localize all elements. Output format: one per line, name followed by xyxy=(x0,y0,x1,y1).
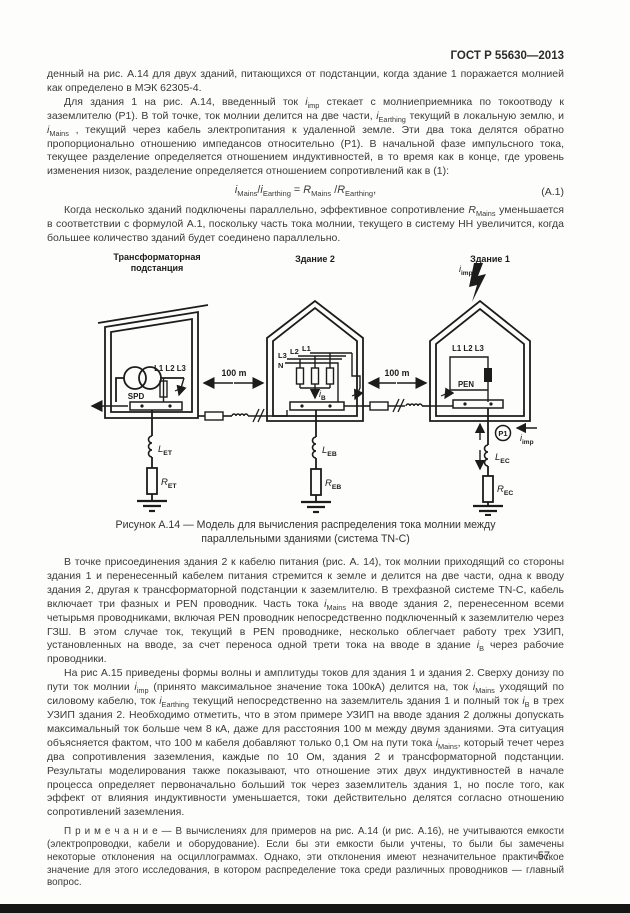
busbar-terminal xyxy=(463,402,466,405)
text-block-bottom: В точке присоединения здания 2 к кабелю … xyxy=(47,556,564,890)
page-number: 57 xyxy=(538,850,550,862)
inductor xyxy=(485,445,489,466)
spd-tube xyxy=(312,368,319,384)
substation-phases-label: L1 L2 L3 xyxy=(154,364,186,373)
ground-symbol xyxy=(473,506,503,515)
note-paragraph: П р и м е ч а н и е — В вычислениях для … xyxy=(47,826,564,890)
inductance-label: LEC xyxy=(495,452,510,465)
page-bottom-edge xyxy=(0,904,630,913)
figure-caption-line1: Рисунок А.14 — Модель для вычисления рас… xyxy=(47,518,564,532)
spd-tube xyxy=(297,368,304,384)
paragraph-parallel-buildings: Когда несколько зданий подключены паралл… xyxy=(47,204,564,246)
substation-title-line2: подстанция xyxy=(131,263,184,273)
paragraph-building2-connection: В точке присоединения здания 2 к кабелю … xyxy=(47,556,564,667)
busbar-terminal xyxy=(140,404,143,407)
doc-header: ГОСТ Р 55630—2013 xyxy=(47,50,564,62)
inductance-label: LET xyxy=(158,444,173,457)
distance-right-label: 100 m xyxy=(385,368,410,378)
busbar xyxy=(130,402,182,410)
building1-phases-label: L1 L2 L3 xyxy=(452,344,484,353)
ground-symbol xyxy=(137,501,167,511)
building2-l1-label: L1 xyxy=(302,344,311,353)
busbar-terminal xyxy=(328,404,331,407)
building2-n-label: N xyxy=(278,361,283,370)
resistor xyxy=(483,476,493,502)
spd-label: SPD xyxy=(128,392,145,401)
lightning-bolt-icon xyxy=(469,263,486,302)
resistance-label: REC xyxy=(497,484,513,497)
text-block-top: денный на рис. А.14 для двух зданий, пит… xyxy=(47,68,564,246)
figure-a14-diagram: Трансформаторная подстанция L1 L2 L3 SPD… xyxy=(50,250,595,516)
paragraph-waveforms: На рис А.15 приведены формы волны и ампл… xyxy=(47,667,564,820)
stepped-wire xyxy=(352,353,360,388)
building1-group: Здание 1 iimp L1 L2 L3 PEN Р1 iimp xyxy=(430,254,537,515)
building2-group: Здание 2 L1 L2 L3 N iB xyxy=(267,254,363,512)
substation-title-line1: Трансформаторная xyxy=(113,252,200,262)
ground-symbol xyxy=(301,502,331,512)
resistor xyxy=(311,469,321,495)
resistance-label: RET xyxy=(161,477,177,490)
cable-right-group: 100 m xyxy=(363,368,430,412)
cable-inductor xyxy=(406,404,422,406)
paragraph-continued: денный на рис. А.14 для двух зданий, пит… xyxy=(47,68,564,96)
building2-title: Здание 2 xyxy=(295,254,335,264)
p1-label: Р1 xyxy=(498,429,507,438)
pen-label: PEN xyxy=(458,380,474,389)
ib-current-label: iB xyxy=(319,389,326,402)
inductance-label: LEB xyxy=(322,445,337,458)
formula-a1: iMains/iEarthing = RMains /REarthing, (А… xyxy=(47,184,564,200)
iimp-bottom-label: iimp xyxy=(520,433,534,446)
building2-l2-label: L2 xyxy=(290,347,299,356)
inductor xyxy=(313,437,317,458)
busbar-terminal xyxy=(168,404,171,407)
resistor xyxy=(147,468,157,494)
inductor xyxy=(149,436,153,457)
busbar xyxy=(453,400,503,408)
hatch-mark xyxy=(441,392,450,396)
cable-resistor xyxy=(370,402,388,410)
formula-number: (А.1) xyxy=(541,186,564,198)
cable-resistor xyxy=(205,412,223,420)
spd-tube xyxy=(327,368,334,384)
distance-left-label: 100 m xyxy=(222,368,247,378)
cable-left-group: 100 m xyxy=(198,368,267,422)
cable-inductor xyxy=(232,414,248,416)
document-page: ГОСТ Р 55630—2013 денный на рис. А.14 дл… xyxy=(0,0,630,913)
hatch-mark xyxy=(175,387,184,391)
resistance-label: REB xyxy=(325,478,341,491)
figure-caption: Рисунок А.14 — Модель для вычисления рас… xyxy=(47,518,564,546)
figure-caption-line2: параллельными зданиями (система TN-C) xyxy=(47,532,564,546)
building1-title: Здание 1 xyxy=(470,254,510,264)
building1-outer-wall xyxy=(430,301,530,421)
busbar-terminal xyxy=(489,402,492,405)
wire xyxy=(116,378,124,402)
iimp-top-label: iimp xyxy=(459,264,473,277)
busbar xyxy=(290,402,344,410)
substation-group: Трансформаторная подстанция L1 L2 L3 SPD… xyxy=(92,252,208,511)
busbar-terminal xyxy=(300,404,303,407)
building2-l3-label: L3 xyxy=(278,351,287,360)
pen-resistor xyxy=(484,368,492,382)
formula-expression: iMains/iEarthing = RMains /REarthing, xyxy=(47,184,564,196)
earth-bond-arrow xyxy=(179,378,184,395)
paragraph-building1-current: Для здания 1 на рис. А.14, введенный ток… xyxy=(47,96,564,179)
